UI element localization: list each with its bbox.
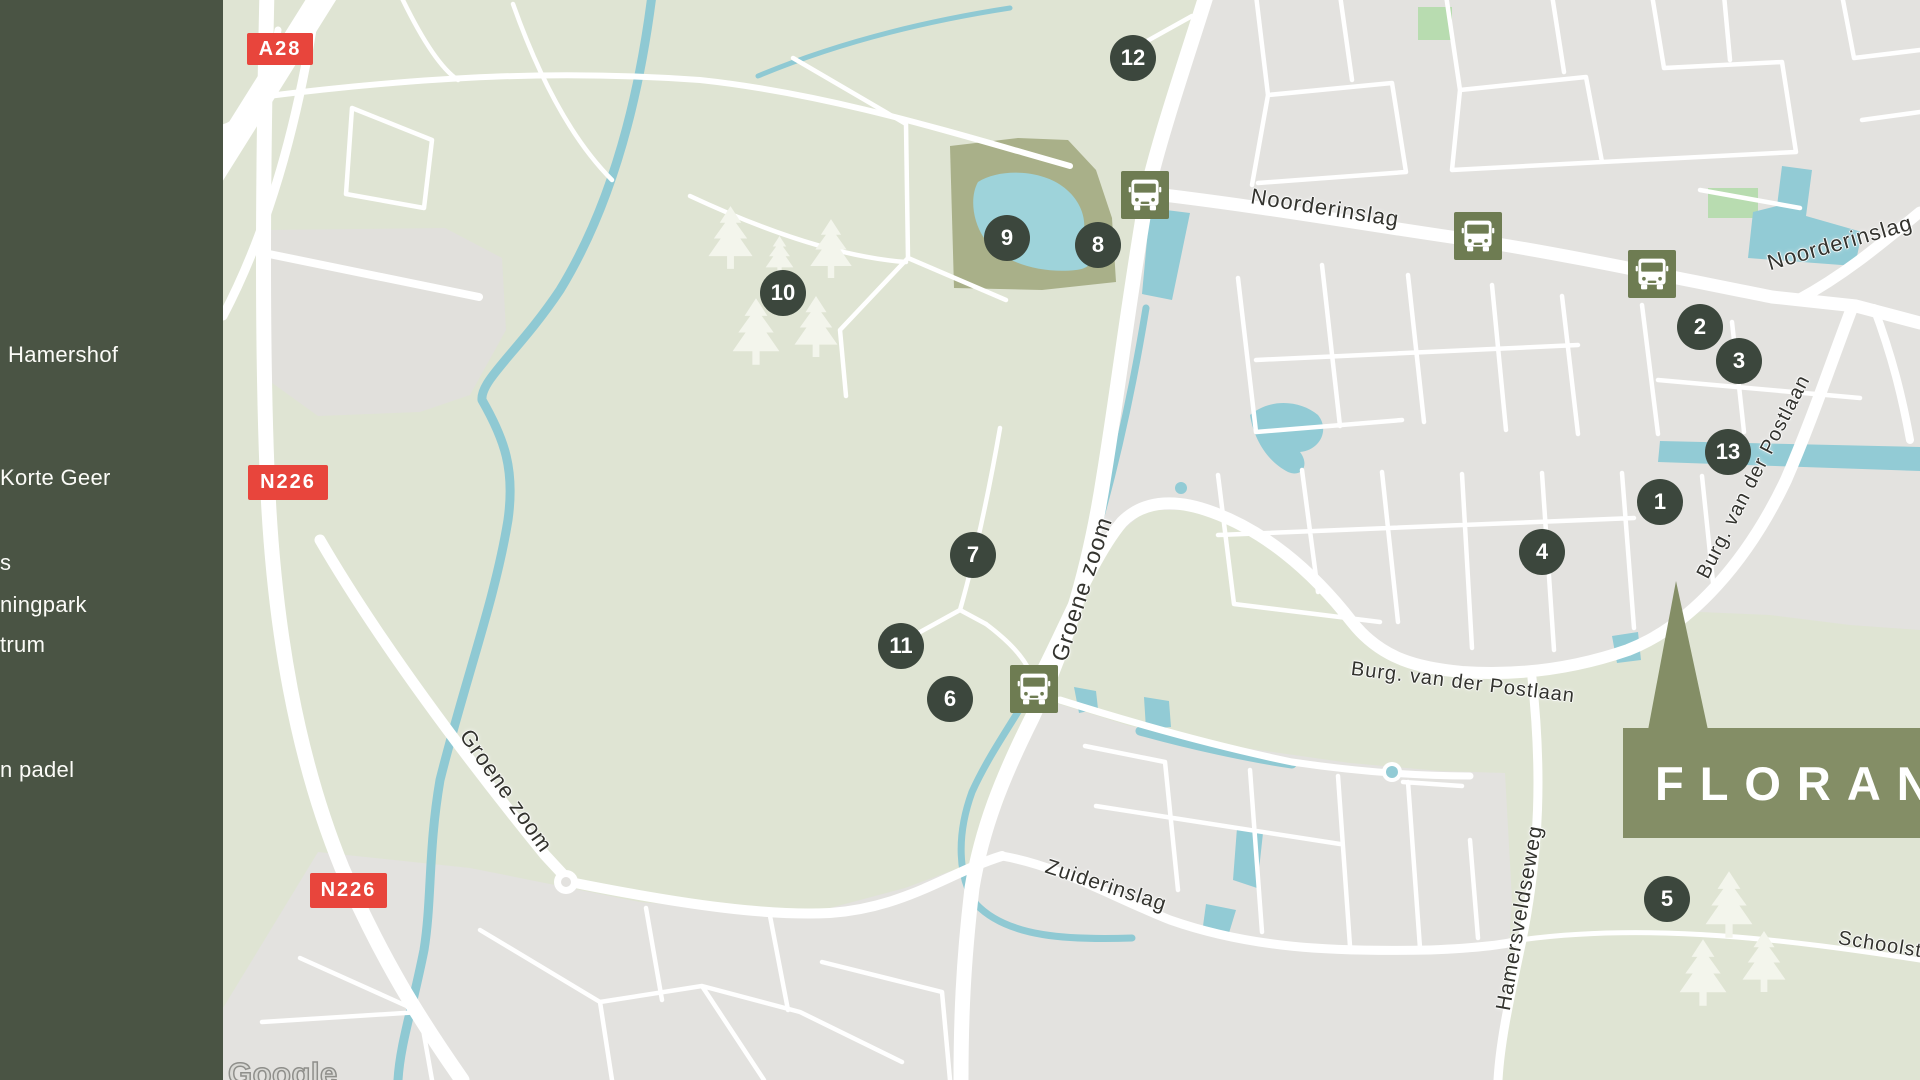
map-marker[interactable]: 3 [1716, 338, 1762, 384]
map-marker[interactable]: 7 [950, 532, 996, 578]
sidebar-item: trum [0, 632, 45, 658]
florant-logo-text: FLORANT [1655, 756, 1920, 811]
florant-flag-banner: FLORANT [1623, 728, 1920, 838]
map-marker[interactable]: 6 [927, 676, 973, 722]
sidebar-item: s [0, 550, 11, 576]
bus-icon [1456, 214, 1500, 258]
bus-stop [1628, 250, 1676, 298]
bus-icon [1630, 252, 1674, 296]
bus-stop [1010, 665, 1058, 713]
route-badge: N226 [310, 873, 387, 908]
route-badge: A28 [247, 33, 313, 65]
map-marker[interactable]: 4 [1519, 529, 1565, 575]
pine-tree-icon [706, 206, 755, 270]
legend-sidebar: HamershofKorte Geersningparktrumn padel [0, 0, 223, 1080]
bus-icon [1012, 667, 1056, 711]
pine-tree-icon [808, 219, 854, 279]
sidebar-item: Korte Geer [0, 465, 111, 491]
map-marker[interactable]: 1 [1637, 479, 1683, 525]
map-marker[interactable]: 13 [1705, 429, 1751, 475]
map-marker[interactable]: 2 [1677, 304, 1723, 350]
map-marker[interactable]: 11 [878, 623, 924, 669]
pine-tree-icon [1703, 871, 1755, 939]
bus-stop [1454, 212, 1502, 260]
map-marker[interactable]: 5 [1644, 876, 1690, 922]
pine-tree-icon [1740, 931, 1788, 993]
sidebar-item: ningpark [0, 592, 87, 618]
sidebar-item: n padel [0, 757, 74, 783]
bus-icon [1123, 173, 1167, 217]
map-marker[interactable]: 8 [1075, 222, 1121, 268]
map-canvas[interactable]: NoorderinslagNoorderinslagGroene zoomGro… [0, 0, 1920, 1080]
google-watermark[interactable]: Google [228, 1056, 338, 1080]
map-marker[interactable]: 9 [984, 215, 1030, 261]
sidebar-item: Hamershof [8, 342, 118, 368]
pine-tree-icon [1677, 939, 1729, 1007]
map-marker[interactable]: 10 [760, 270, 806, 316]
bus-stop [1121, 171, 1169, 219]
map-marker[interactable]: 12 [1110, 35, 1156, 81]
route-badge: N226 [248, 465, 328, 500]
